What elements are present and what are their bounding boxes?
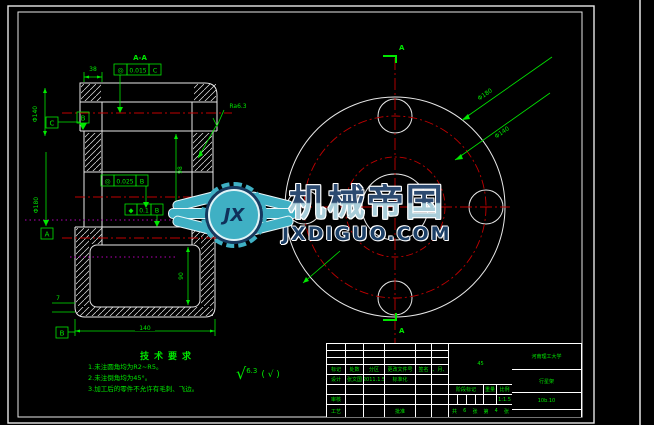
svg-text:38: 38 xyxy=(89,66,97,73)
scale-label: 比例 xyxy=(497,385,512,394)
datum-b: B xyxy=(77,112,89,130)
svg-text:B: B xyxy=(60,330,65,338)
roughness-symbol: √ xyxy=(236,366,246,382)
part-name: 行星架 xyxy=(512,370,581,392)
tech-requirements-title: 技术要求 xyxy=(140,349,293,362)
svg-text:90: 90 xyxy=(178,272,185,280)
section-mark-bottom: A xyxy=(399,327,405,335)
dim-phi140: Φ140 xyxy=(32,88,47,136)
weight-label: 重量 xyxy=(484,385,496,394)
brand-name: 机械帝国 xyxy=(289,184,445,222)
fcf-position: ◆ 0.1 B xyxy=(125,204,163,227)
scale-value: 1:1.5 xyxy=(497,395,512,404)
phantom-lines-magenta xyxy=(25,220,185,257)
design-date: 2011.1.5 xyxy=(364,375,384,384)
dim-90: 90 xyxy=(178,247,190,305)
logo-monogram: JX xyxy=(224,205,245,226)
section-label: A-A xyxy=(133,54,147,62)
drawing-number: 10b.10 xyxy=(512,393,581,409)
school-name: 河南理工大学 xyxy=(512,344,581,369)
svg-text:98: 98 xyxy=(177,166,184,174)
svg-text:0.1: 0.1 xyxy=(139,208,149,215)
fcf-concentricity-2: ◎ 0.025 B xyxy=(101,175,149,208)
title-block-right: 河南理工大学 行星架 10b.10 xyxy=(512,344,581,416)
svg-text:C: C xyxy=(50,120,55,128)
svg-text:140: 140 xyxy=(139,325,151,332)
design-label: 设计 xyxy=(327,375,345,384)
section-mark-top: A xyxy=(399,44,405,52)
title-block: 标记 处数 分区 更改文件号 签名 年、月、日 设计 张文国 2011.1.5 … xyxy=(326,343,582,417)
process-label: 工艺 xyxy=(327,405,345,417)
designer-name: 张文国 xyxy=(346,375,363,384)
watermark-text: 机械帝国 JXDIGUO.COM xyxy=(282,184,452,245)
svg-text:Φ140: Φ140 xyxy=(32,106,39,122)
leader-bolt-label: Φ140 xyxy=(494,125,511,140)
title-block-revision-table: 标记 处数 分区 更改文件号 签名 年、月、日 设计 张文国 2011.1.5 … xyxy=(327,344,449,416)
brand-domain: JXDIGUO.COM xyxy=(282,223,452,245)
sheet-info: 共 6 张 第 4 张 xyxy=(449,405,512,417)
fcf-concentricity-1: ◎ 0.015 C xyxy=(114,64,161,113)
roughness-value: 6.3 xyxy=(246,367,257,375)
rev-header: 更改文件号 xyxy=(385,365,415,374)
stage-label: 阶段标记 xyxy=(449,385,483,394)
svg-text:Φ180: Φ180 xyxy=(33,197,40,213)
svg-text:B: B xyxy=(140,178,144,186)
rev-header: 标记 xyxy=(327,365,345,374)
watermark: JX 机械帝国 JXDIGUO.COM xyxy=(180,174,498,254)
svg-text:Ra6.3: Ra6.3 xyxy=(229,103,246,110)
svg-text:0.025: 0.025 xyxy=(116,179,133,186)
svg-text:B: B xyxy=(81,115,86,123)
leader-outer-label: Φ180 xyxy=(477,87,494,102)
surface-roughness-note: √6.3 ( √ ) xyxy=(236,366,280,382)
dim-140: 140 xyxy=(75,319,215,336)
svg-text:B: B xyxy=(155,207,159,215)
dim-7: 7 xyxy=(52,295,75,312)
material-cell: 45 xyxy=(449,344,512,384)
tech-requirement-item: 3.加工后的零件不允许有毛刺、飞边。 xyxy=(88,384,293,395)
svg-text:A: A xyxy=(45,231,50,239)
rev-header: 签名 xyxy=(416,365,431,374)
rev-header: 处数 xyxy=(346,365,363,374)
approve-label: 批准 xyxy=(385,405,415,417)
svg-text:C: C xyxy=(153,67,158,75)
svg-text:◆: ◆ xyxy=(129,207,134,215)
check-label: 审核 xyxy=(327,395,345,404)
title-block-middle: 45 阶段标记 重量 比例 1:1.5 共 6 张 第 4 张 xyxy=(449,344,512,416)
svg-text:◎: ◎ xyxy=(104,178,110,186)
datum-b-bottom: B xyxy=(56,327,75,338)
cad-screenshot: { "watermark": { "brand": "机械帝国", "domai… xyxy=(0,0,654,425)
dim-phi180: Φ180 xyxy=(33,152,49,226)
roughness-other: ( √ ) xyxy=(261,370,279,380)
rev-header: 年、月、日 xyxy=(432,365,448,374)
winged-gear-logo-icon: JX xyxy=(180,174,282,254)
svg-text:0.015: 0.015 xyxy=(129,68,146,75)
svg-text:◎: ◎ xyxy=(117,67,123,75)
datum-c: C xyxy=(46,117,80,128)
gear-icon: JX xyxy=(208,189,260,241)
svg-text:7: 7 xyxy=(56,295,60,302)
rev-header: 分区 xyxy=(364,365,384,374)
datum-a: A xyxy=(41,228,53,239)
dim-38: 38 xyxy=(84,66,102,82)
standardization-label: 标准化 xyxy=(385,375,415,384)
